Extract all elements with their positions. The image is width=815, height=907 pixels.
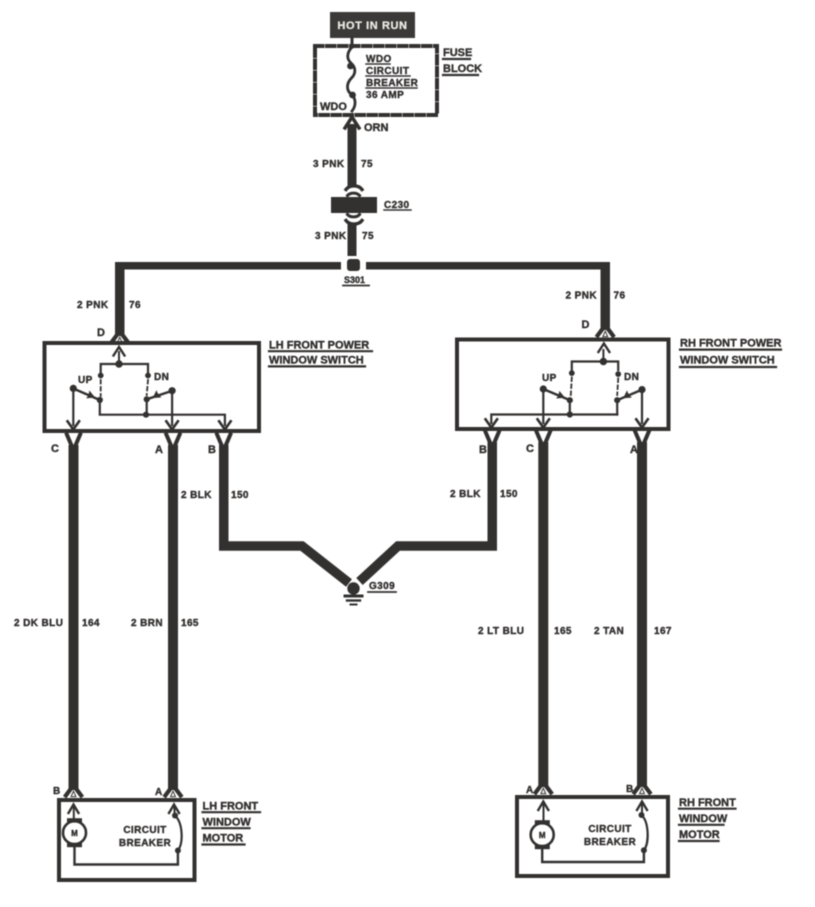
- svg-text:RH FRONT POWER: RH FRONT POWER: [680, 338, 781, 350]
- svg-text:36 AMP: 36 AMP: [366, 90, 404, 101]
- svg-text:75: 75: [362, 231, 374, 242]
- svg-text:DN: DN: [154, 372, 169, 383]
- svg-text:UP: UP: [78, 375, 93, 386]
- svg-text:150: 150: [231, 490, 249, 501]
- svg-text:3 PNK: 3 PNK: [313, 159, 345, 170]
- svg-text:167: 167: [654, 626, 672, 637]
- svg-text:DN: DN: [624, 372, 639, 383]
- svg-text:A: A: [526, 785, 534, 796]
- svg-text:WINDOW SWITCH: WINDOW SWITCH: [680, 355, 775, 367]
- svg-text:C: C: [526, 443, 534, 455]
- svg-text:B: B: [53, 786, 61, 797]
- svg-text:2 BRN: 2 BRN: [131, 618, 163, 629]
- svg-text:WINDOW SWITCH: WINDOW SWITCH: [269, 355, 364, 367]
- svg-text:LH FRONT POWER: LH FRONT POWER: [269, 340, 369, 352]
- svg-text:165: 165: [181, 618, 199, 629]
- svg-text:B: B: [208, 444, 216, 456]
- svg-text:BREAKER: BREAKER: [584, 837, 637, 848]
- svg-text:2 LT BLU: 2 LT BLU: [478, 626, 524, 637]
- svg-text:G309: G309: [369, 581, 395, 592]
- svg-text:76: 76: [614, 291, 626, 302]
- svg-text:M: M: [71, 829, 78, 838]
- svg-text:FUSE: FUSE: [443, 47, 472, 59]
- svg-text:BREAKER: BREAKER: [119, 838, 172, 849]
- svg-text:WINDOW: WINDOW: [679, 813, 728, 825]
- svg-text:LH FRONT: LH FRONT: [203, 801, 259, 813]
- svg-text:HOT IN RUN: HOT IN RUN: [337, 20, 407, 32]
- svg-text:76: 76: [129, 300, 141, 311]
- svg-text:A: A: [630, 444, 638, 456]
- svg-text:2 BLK: 2 BLK: [181, 490, 212, 501]
- svg-text:UP: UP: [542, 373, 557, 384]
- svg-text:75: 75: [361, 159, 373, 170]
- svg-text:WDO: WDO: [320, 101, 347, 113]
- svg-text:2 BLK: 2 BLK: [450, 489, 481, 500]
- svg-text:CIRCUIT: CIRCUIT: [123, 825, 166, 836]
- svg-text:2 DK BLU: 2 DK BLU: [14, 618, 63, 629]
- svg-text:A: A: [155, 444, 163, 456]
- svg-text:3 PNK: 3 PNK: [315, 231, 347, 242]
- svg-text:MOTOR: MOTOR: [679, 829, 720, 841]
- svg-text:164: 164: [82, 618, 100, 629]
- svg-text:D: D: [582, 319, 590, 331]
- svg-text:2 PNK: 2 PNK: [77, 300, 109, 311]
- svg-text:D: D: [97, 327, 105, 339]
- svg-text:2 PNK: 2 PNK: [566, 291, 598, 302]
- svg-text:B: B: [626, 784, 634, 795]
- svg-text:ORN: ORN: [364, 122, 389, 134]
- svg-text:165: 165: [554, 626, 572, 637]
- svg-text:A: A: [155, 787, 163, 798]
- svg-text:C: C: [51, 443, 59, 455]
- svg-text:B: B: [479, 444, 487, 456]
- svg-text:MOTOR: MOTOR: [203, 833, 244, 845]
- svg-text:CIRCUIT: CIRCUIT: [588, 824, 631, 835]
- svg-text:M: M: [539, 831, 546, 840]
- svg-text:BLOCK: BLOCK: [443, 63, 482, 75]
- svg-text:RH FRONT: RH FRONT: [679, 797, 736, 809]
- svg-text:WINDOW: WINDOW: [203, 817, 252, 829]
- svg-text:S301: S301: [344, 275, 365, 285]
- svg-text:2 TAN: 2 TAN: [594, 626, 624, 637]
- svg-text:150: 150: [500, 489, 518, 500]
